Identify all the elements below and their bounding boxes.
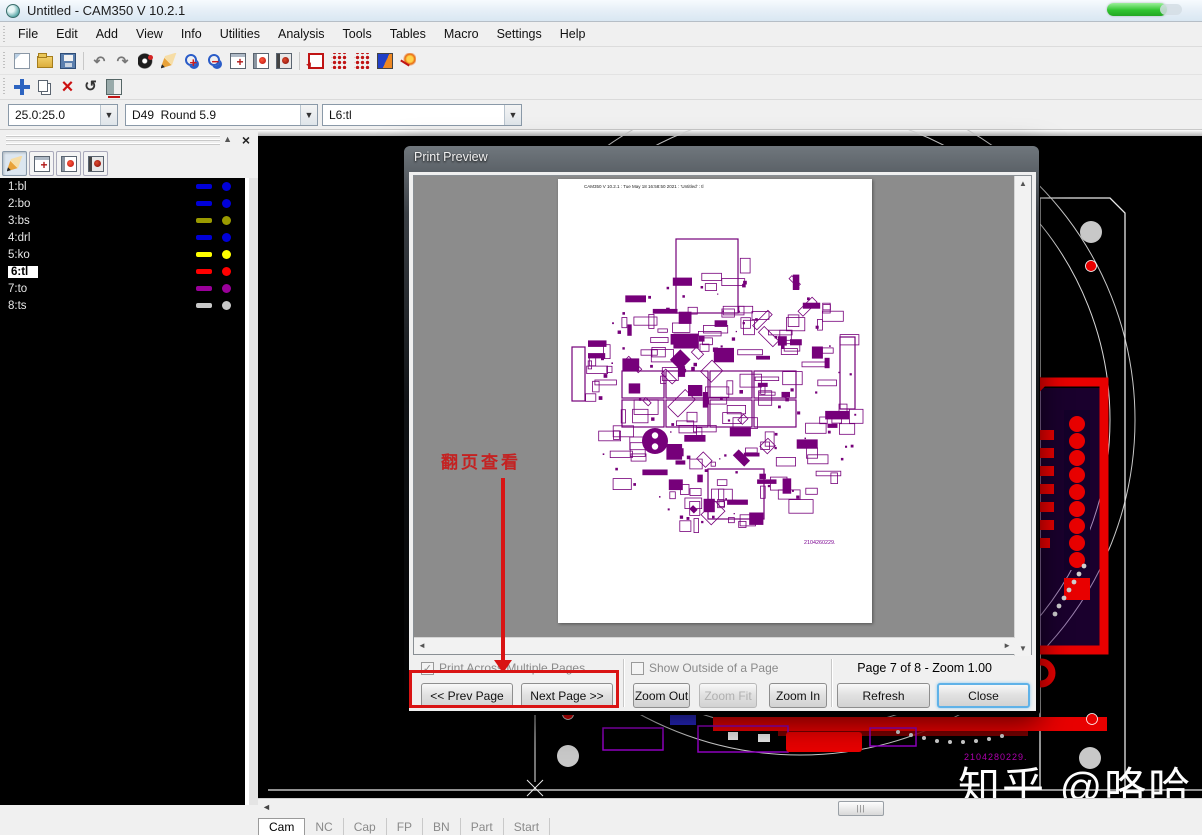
layer-line-swatch[interactable] xyxy=(196,303,212,308)
panel-toolbar xyxy=(2,151,256,178)
show-outside-label: Show Outside of a Page xyxy=(649,661,778,675)
tab-bn[interactable]: BN xyxy=(423,818,461,835)
layer-pad-swatch[interactable] xyxy=(222,199,231,208)
menu-settings[interactable]: Settings xyxy=(488,24,551,44)
net-highlight-icon xyxy=(400,53,416,69)
film-red-button[interactable] xyxy=(249,49,272,72)
color-palette-button[interactable] xyxy=(373,49,396,72)
grid-dots-icon xyxy=(331,53,347,69)
undo-icon xyxy=(92,53,108,69)
menu-utilities[interactable]: Utilities xyxy=(211,24,269,44)
menu-bar: FileEditAddViewInfoUtilitiesAnalysisTool… xyxy=(0,22,1202,47)
canvas-hscrollbar[interactable]: ◄ ||| xyxy=(258,798,1202,818)
menu-view[interactable]: View xyxy=(127,24,172,44)
new-icon xyxy=(14,53,30,69)
combo-toolbar: 25.0:25.0 ▼ D49 Round 5.9 ▼ L6:tl ▼ xyxy=(0,100,1202,130)
show-outside-checkbox[interactable] xyxy=(631,662,644,675)
scroll-left-icon[interactable]: ◄ xyxy=(262,802,271,812)
layer-pad-swatch[interactable] xyxy=(222,182,231,191)
layer-swatches xyxy=(196,182,231,191)
layer-line-swatch[interactable] xyxy=(196,252,212,257)
layer-pad-swatch[interactable] xyxy=(222,284,231,293)
zoom-in-button[interactable] xyxy=(180,49,203,72)
tab-cam[interactable]: Cam xyxy=(258,818,305,835)
group-divider xyxy=(831,659,833,707)
layer-row[interactable]: 1:bl xyxy=(0,178,245,195)
clean-icon xyxy=(7,156,23,172)
toolbar-separator xyxy=(299,52,300,70)
dialog-title: Print Preview xyxy=(414,150,488,164)
grip-lines xyxy=(6,135,220,146)
grid-combo[interactable]: 25.0:25.0 ▼ xyxy=(8,104,118,126)
window-add-button[interactable] xyxy=(29,151,54,176)
layer-row[interactable]: 4:drl xyxy=(0,229,245,246)
window-add-icon xyxy=(230,53,246,69)
tab-nc[interactable]: NC xyxy=(305,818,343,835)
layer-label: 7:to xyxy=(8,283,38,295)
layer-pad-swatch[interactable] xyxy=(222,216,231,225)
layer-pad-swatch[interactable] xyxy=(222,233,231,242)
scroll-left-icon[interactable]: ◄ xyxy=(418,641,426,650)
chevron-down-icon[interactable]: ▼ xyxy=(504,105,521,125)
menu-edit[interactable]: Edit xyxy=(47,24,87,44)
menu-tools[interactable]: Tools xyxy=(334,24,381,44)
layer-swatches xyxy=(196,301,231,310)
delete-icon xyxy=(60,79,76,95)
page-code-text: 2104260229. xyxy=(804,539,836,545)
toolbar-separator xyxy=(83,52,84,70)
mirror-icon xyxy=(106,79,122,95)
tab-start[interactable]: Start xyxy=(504,818,550,835)
layer-label: 2:bo xyxy=(8,198,38,210)
view-layers-button[interactable] xyxy=(134,49,157,72)
layer-row[interactable]: 6:tl xyxy=(0,263,245,280)
layer-pad-swatch[interactable] xyxy=(222,267,231,276)
grid-dots-button[interactable] xyxy=(327,49,350,72)
dcode-combo-value: D49 Round 5.9 xyxy=(126,108,300,122)
scrollbar-thumb[interactable]: ||| xyxy=(838,801,884,816)
layer-pad-swatch[interactable] xyxy=(222,250,231,259)
page-status: Page 7 of 8 - Zoom 1.00 xyxy=(857,661,992,675)
clean-button[interactable] xyxy=(157,49,180,72)
view-layers-icon xyxy=(138,53,154,69)
print-preview-dialog[interactable]: Print Preview CAM350 V 10.2.1 : Tue May … xyxy=(403,145,1040,715)
rotate-button[interactable] xyxy=(79,76,102,99)
grid-dots2-icon xyxy=(354,53,370,69)
menu-help[interactable]: Help xyxy=(551,24,595,44)
close-button[interactable]: Close xyxy=(937,683,1030,708)
window-add-icon xyxy=(34,156,50,172)
preview-area: CAM350 V 10.2.1 : Tue May 18 16:58:50 20… xyxy=(413,175,1032,655)
dcode-combo[interactable]: D49 Round 5.9 ▼ xyxy=(125,104,318,126)
window-title: Untitled - CAM350 V 10.2.1 xyxy=(27,3,185,18)
save-button[interactable] xyxy=(56,49,79,72)
open-button[interactable] xyxy=(33,49,56,72)
layer-list: 1:bl2:bo3:bs4:drl5:ko6:tl7:to8:ts xyxy=(0,178,245,805)
overlay-green-capsule xyxy=(1107,3,1167,16)
layer-label: 5:ko xyxy=(8,249,38,261)
menu-file[interactable]: File xyxy=(9,24,47,44)
window-add-button[interactable] xyxy=(226,49,249,72)
menu-tables[interactable]: Tables xyxy=(381,24,435,44)
layer-label: 6:tl xyxy=(8,266,38,278)
overlay-capsule-tail xyxy=(1160,4,1182,15)
annotation-text: 翻页查看 xyxy=(441,448,521,473)
copy-icon xyxy=(38,80,48,92)
layer-row[interactable]: 3:bs xyxy=(0,212,245,229)
show-outside-row: Show Outside of a Page xyxy=(631,661,778,675)
scroll-right-icon[interactable]: ► xyxy=(1003,641,1011,650)
film-dark-icon xyxy=(88,156,104,172)
chevron-down-icon[interactable]: ▼ xyxy=(300,105,317,125)
pad-edit-button[interactable] xyxy=(304,49,327,72)
refresh-button[interactable]: Refresh xyxy=(837,683,930,708)
redo-icon xyxy=(115,53,131,69)
app-icon xyxy=(6,4,20,18)
toolbar-grip xyxy=(3,52,5,70)
clean-icon xyxy=(161,53,177,69)
scroll-down-icon[interactable]: ▼ xyxy=(1019,644,1027,653)
layer-swatches xyxy=(196,216,231,225)
layer-swatches xyxy=(196,233,231,242)
layer-combo-value: L6:tl xyxy=(323,108,504,122)
layer-swatches xyxy=(196,250,231,259)
menubar-grip xyxy=(3,26,5,43)
film-red-icon xyxy=(61,156,77,172)
layer-swatches xyxy=(196,284,231,293)
layer-line-swatch[interactable] xyxy=(196,235,212,240)
color-palette-icon xyxy=(377,53,393,69)
rotate-icon xyxy=(83,79,99,95)
panel-grip[interactable]: ▲ × xyxy=(0,132,258,150)
grid-dots2-button[interactable] xyxy=(350,49,373,72)
layer-label: 1:bl xyxy=(8,181,38,193)
preview-page: CAM350 V 10.2.1 : Tue May 18 16:58:50 20… xyxy=(558,179,872,623)
open-icon xyxy=(37,56,53,68)
layer-row[interactable]: 7:to xyxy=(0,280,245,297)
layer-line-swatch[interactable] xyxy=(196,201,212,206)
zoom-out-icon xyxy=(208,54,220,66)
film-red-icon xyxy=(253,53,269,69)
annotation-arrow-line xyxy=(501,478,505,662)
layer-swatches xyxy=(196,199,231,208)
move-icon xyxy=(14,79,30,95)
annotation-arrow-head xyxy=(494,660,512,673)
scroll-up-icon[interactable]: ▲ xyxy=(1019,179,1027,188)
film-dark-icon xyxy=(276,53,292,69)
panel-splitter[interactable] xyxy=(245,178,258,805)
zoom-out-button[interactable] xyxy=(203,49,226,72)
mode-tabs: CamNCCapFPBNPartStart xyxy=(258,818,1202,835)
layer-label: 4:drl xyxy=(8,232,38,244)
preview-vscrollbar[interactable]: ▲ ▼ xyxy=(1014,176,1031,656)
layer-row[interactable]: 2:bo xyxy=(0,195,245,212)
layer-pad-swatch[interactable] xyxy=(222,301,231,310)
move-button[interactable] xyxy=(10,76,33,99)
menu-analysis[interactable]: Analysis xyxy=(269,24,334,44)
film-dark-button[interactable] xyxy=(83,151,108,176)
save-icon xyxy=(60,53,76,69)
zoom-in-icon xyxy=(185,54,197,66)
copy-button[interactable] xyxy=(33,76,56,99)
layer-label: 8:ts xyxy=(8,300,38,312)
tab-part[interactable]: Part xyxy=(461,818,504,835)
tab-fp[interactable]: FP xyxy=(387,818,423,835)
layer-line-swatch[interactable] xyxy=(196,218,212,223)
menu-info[interactable]: Info xyxy=(172,24,211,44)
layer-combo[interactable]: L6:tl ▼ xyxy=(322,104,522,126)
toolbar-main xyxy=(0,47,1202,75)
silkscreen-art xyxy=(558,179,872,623)
panel-close-icon[interactable]: × xyxy=(242,132,250,148)
layer-row[interactable]: 8:ts xyxy=(0,297,245,314)
zoom-out-button[interactable]: Zoom Out xyxy=(633,683,690,708)
layer-label: 3:bs xyxy=(8,215,38,227)
layer-line-swatch[interactable] xyxy=(196,184,212,189)
panel-collapse-icon[interactable]: ▲ xyxy=(223,134,232,144)
menu-add[interactable]: Add xyxy=(87,24,127,44)
annotation-highlight-box xyxy=(409,670,619,708)
pad-edit-icon xyxy=(308,53,324,69)
grid-combo-value: 25.0:25.0 xyxy=(9,108,100,122)
net-highlight-button[interactable] xyxy=(396,49,419,72)
zoom-fit-button[interactable]: Zoom Fit xyxy=(699,683,757,708)
toolbar-edit xyxy=(0,75,1202,100)
layer-swatches xyxy=(196,267,231,276)
film-dark-button[interactable] xyxy=(272,49,295,72)
redo-button[interactable] xyxy=(111,49,134,72)
zoom-in-button[interactable]: Zoom In xyxy=(769,683,827,708)
toolbar-grip xyxy=(3,78,5,96)
tab-cap[interactable]: Cap xyxy=(344,818,387,835)
layer-line-swatch[interactable] xyxy=(196,269,212,274)
undo-button[interactable] xyxy=(88,49,111,72)
page-header-text: CAM350 V 10.2.1 : Tue May 18 16:58:50 20… xyxy=(584,184,864,189)
film-red-button[interactable] xyxy=(56,151,81,176)
window-titlebar[interactable]: Untitled - CAM350 V 10.2.1 xyxy=(0,0,1202,22)
menu-macro[interactable]: Macro xyxy=(435,24,488,44)
new-button[interactable] xyxy=(10,49,33,72)
mirror-button[interactable] xyxy=(102,76,125,99)
group-divider xyxy=(623,659,625,707)
clean-button[interactable] xyxy=(2,151,27,176)
chevron-down-icon[interactable]: ▼ xyxy=(100,105,117,125)
layers-panel: ▲ × 1:bl2:bo3:bs4:drl5:ko6:tl7:to8:ts xyxy=(0,130,258,835)
layer-row[interactable]: 5:ko xyxy=(0,246,245,263)
layer-line-swatch[interactable] xyxy=(196,286,212,291)
delete-button[interactable] xyxy=(56,76,79,99)
